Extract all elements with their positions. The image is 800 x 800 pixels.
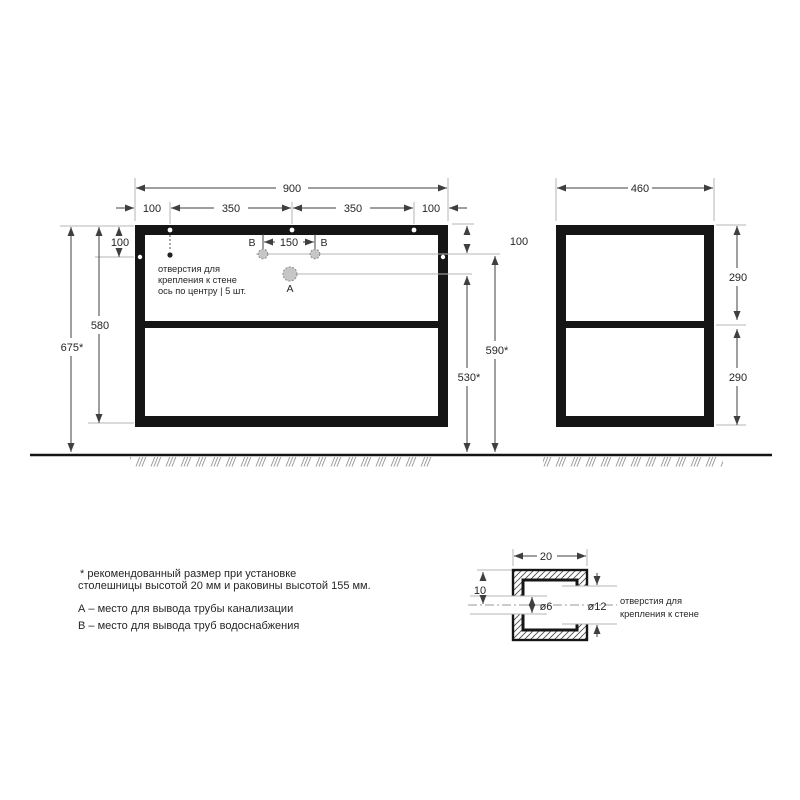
holes-note-line1: отверстия для <box>158 264 220 274</box>
mounting-hole-side-right <box>441 255 445 259</box>
dim-tube-half: 10 <box>474 572 486 604</box>
dim-side-width: 460 <box>557 183 713 195</box>
detail-extension-lines <box>477 549 587 570</box>
side-frame <box>556 225 714 427</box>
floor-hatch-right <box>543 457 723 469</box>
dim-overall-height: 675* <box>61 227 84 452</box>
dim-label-seg-350-right: 350 <box>344 203 362 215</box>
mounting-hole-side-left <box>138 255 142 259</box>
floor <box>30 455 772 469</box>
detail-note: отверстия для крепления к стене <box>620 596 699 619</box>
dim-label-offset-left: 100 <box>111 237 129 249</box>
dim-label-530: 530* <box>458 372 481 384</box>
side-frame-top-opening <box>566 235 704 321</box>
dim-b-height: 590* <box>486 256 509 452</box>
supply-hole-right <box>310 249 320 259</box>
mounting-hole-top-right <box>412 228 417 233</box>
dim-tube-width: 20 <box>514 551 586 563</box>
dim-label-580: 580 <box>91 320 109 332</box>
dim-a-height: 530* <box>458 276 481 452</box>
dim-label-10: 10 <box>474 585 486 597</box>
side-view: 460 290 290 <box>556 178 747 427</box>
dim-label-d12: ø12 <box>588 601 607 613</box>
footnote-recommended-2: столешницы высотой 20 мм и раковины высо… <box>78 580 371 592</box>
dim-hole-large: ø12 <box>588 573 607 637</box>
dim-label-150: 150 <box>280 237 298 249</box>
dim-hole-offset-right: 100 <box>467 226 528 253</box>
floor-hatch-left <box>130 457 433 469</box>
dim-label-900: 900 <box>283 183 301 195</box>
dim-label-675: 675* <box>61 342 84 354</box>
footnote-b-meaning: В – место для вывода труб водоснабжения <box>78 620 299 632</box>
label-b-left: В <box>248 237 255 249</box>
front-frame-bottom-opening <box>145 328 438 416</box>
dim-label-590: 590* <box>486 345 509 357</box>
dim-side-bottom-section: 290 <box>729 329 747 425</box>
dim-hole-offset-left: 100 <box>111 227 129 257</box>
label-b-right: В <box>320 237 327 249</box>
footnote-recommended-1: * рекомендованный размер при установке <box>80 568 296 580</box>
label-a-point: А <box>286 283 293 295</box>
technical-drawing-page: 900 100 350 350 100 100 100 <box>0 0 800 800</box>
dim-label-d6: ø6 <box>540 601 553 613</box>
holes-note-line3: ось по центру | 5 шт. <box>158 286 246 296</box>
mounting-hole-top-center <box>290 228 295 233</box>
supply-hole-left <box>258 249 268 259</box>
detail-note-line2: крепления к стене <box>620 609 699 619</box>
mounting-hole-top-left <box>168 228 173 233</box>
dim-label-460: 460 <box>631 183 649 195</box>
holes-note-line2: крепления к стене <box>158 275 237 285</box>
dim-label-seg-350-left: 350 <box>222 203 240 215</box>
dim-frame-height: 580 <box>91 227 109 423</box>
front-frame <box>135 225 448 427</box>
detail-note-line1: отверстия для <box>620 596 682 606</box>
dim-label-290-bottom: 290 <box>729 372 747 384</box>
dim-side-top-section: 290 <box>729 226 747 320</box>
detail-view: 20 10 ø6 ø12 отверстия для крепления к с… <box>468 549 699 640</box>
front-view: 900 100 350 350 100 100 100 <box>60 178 528 452</box>
dim-label-offset-right: 100 <box>510 236 528 248</box>
side-frame-bottom-opening <box>566 328 704 416</box>
dim-label-seg-100-left: 100 <box>143 203 161 215</box>
dim-label-seg-100-right: 100 <box>422 203 440 215</box>
footnote-a-meaning: А – место для вывода трубы канализации <box>78 603 293 615</box>
dim-label-290-top: 290 <box>729 272 747 284</box>
cabinet-technical-drawing: 900 100 350 350 100 100 100 <box>0 0 800 800</box>
holes-note-leader-dot <box>167 252 172 257</box>
footnotes: * рекомендованный размер при установке с… <box>78 568 371 632</box>
dim-total-width: 900 <box>136 183 447 195</box>
dim-label-20: 20 <box>540 551 552 563</box>
drain-hole-circle <box>283 267 297 281</box>
